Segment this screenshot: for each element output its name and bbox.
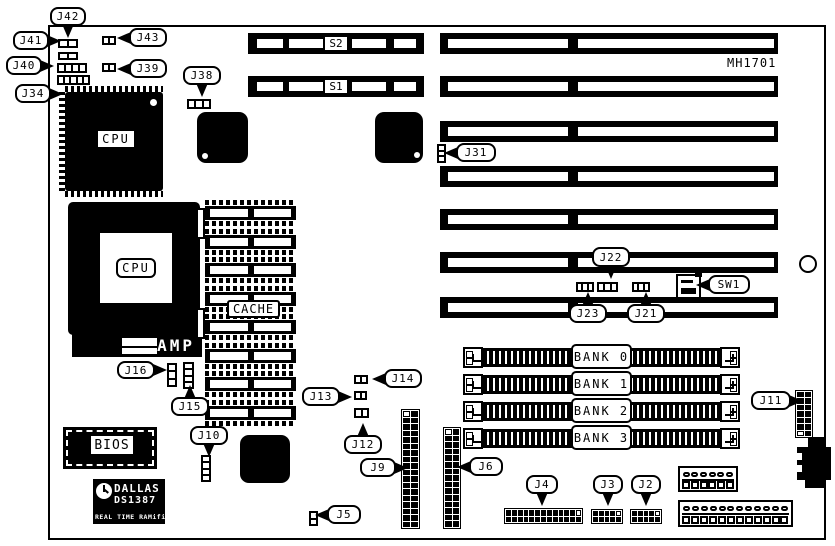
callout-arrow-j40 — [40, 60, 54, 72]
callout-j40: J40 — [6, 56, 42, 75]
connector-pin — [638, 517, 643, 522]
cpu-qfp-pin1-dot — [150, 99, 157, 106]
connector-pin — [655, 511, 660, 516]
simm-bank-1: BANK 1 — [463, 374, 740, 395]
jumper-pin — [73, 65, 78, 71]
jumper-block-j43 — [102, 36, 116, 45]
bios-label: BIOS — [91, 436, 133, 454]
jumper-block-j40 — [57, 63, 87, 73]
connector-pin — [411, 489, 418, 495]
power-pin — [772, 506, 779, 511]
connector-pin — [445, 515, 452, 521]
connector-pin — [553, 517, 558, 523]
power-connector-ps1 — [678, 466, 738, 492]
connector-pin — [632, 517, 637, 522]
chip-pins-top — [205, 400, 296, 405]
connector-pin — [506, 510, 511, 516]
cpu-qfp-label: CPU — [98, 131, 134, 147]
callout-arrow-j16 — [153, 364, 167, 376]
chip-pins-top — [205, 200, 296, 205]
mounting-hole — [799, 255, 817, 273]
jumper-pin — [356, 377, 360, 382]
connector-pin — [541, 510, 546, 516]
slot-key-segment — [448, 39, 568, 48]
jumper-pin — [362, 377, 366, 382]
jumper-pin — [169, 380, 175, 385]
power-pin — [701, 506, 708, 511]
connector-pin — [797, 418, 804, 423]
connector-pin — [411, 463, 418, 469]
callout-j16: J16 — [117, 361, 155, 379]
connector-pin — [445, 495, 452, 501]
connector-pin — [445, 449, 452, 455]
power-pin-row — [682, 503, 789, 515]
power-socket — [726, 481, 734, 489]
connector-pin — [453, 442, 460, 448]
expansion-slot-2 — [440, 76, 778, 97]
callout-j23: J23 — [569, 304, 607, 323]
slot-key-segment — [257, 82, 283, 91]
jumper-pin — [169, 365, 175, 370]
power-socket — [772, 516, 780, 524]
jumper-pin — [169, 372, 175, 377]
connector-pin — [445, 521, 452, 527]
connector-pin — [616, 517, 621, 522]
slot-key-segment — [578, 172, 774, 181]
jumper-block-j42 — [58, 39, 78, 48]
cache-chip-6 — [205, 371, 296, 397]
callout-arrow-j9 — [394, 462, 408, 474]
connector-pin — [411, 476, 418, 482]
connector-pin — [403, 515, 410, 521]
cache-chip-5 — [205, 343, 296, 369]
callout-j4: J4 — [526, 475, 558, 494]
connector-pin — [403, 444, 410, 450]
jumper-pin — [110, 65, 114, 70]
power-pin — [717, 472, 724, 477]
jumper-pin — [185, 364, 192, 368]
callout-arrow-j38 — [196, 83, 208, 97]
jumper-block-j13 — [354, 391, 367, 400]
slot-key-segment — [448, 303, 568, 312]
jumper-block-j34 — [57, 75, 90, 85]
cache-chip-1 — [205, 229, 296, 255]
connector-pin — [632, 511, 637, 516]
amp-slot-1 — [122, 338, 157, 346]
connector-pin — [797, 411, 804, 416]
power-socket — [763, 516, 771, 524]
callout-j39: J39 — [129, 59, 167, 78]
connector-j6 — [443, 427, 461, 529]
chip-body — [205, 377, 296, 391]
power-socket — [691, 516, 699, 524]
chip-pins-top — [205, 286, 296, 291]
callout-arrow-j10 — [203, 443, 215, 457]
connector-j3 — [591, 509, 623, 524]
jumper-pin — [203, 470, 209, 474]
connector-pin — [453, 488, 460, 494]
cache-chip-0 — [205, 200, 296, 226]
connector-pin — [403, 496, 410, 502]
jumper-block-j22 — [597, 282, 618, 292]
connector-pin — [453, 436, 460, 442]
connector-pin — [805, 398, 812, 403]
power-pin — [700, 472, 707, 477]
connector-j2 — [630, 509, 662, 524]
chip-pins-bottom — [205, 278, 296, 283]
amp-label: AMP — [157, 336, 195, 355]
connector-pin — [411, 444, 418, 450]
connector-pin — [445, 429, 452, 435]
slot-key-segment — [448, 215, 568, 224]
power-socket — [780, 516, 788, 524]
connector-pin — [512, 510, 517, 516]
power-socket — [700, 481, 708, 489]
connector-pin — [411, 450, 418, 456]
bank-label-0: BANK 0 — [571, 344, 632, 369]
jumper-pin — [203, 476, 209, 480]
power-pin — [683, 472, 690, 477]
power-pin — [754, 506, 761, 511]
bank-right-cap — [720, 428, 740, 449]
motherboard-diagram: MH1701 CPU CPU AMP CACHE BIOS DALLAS DS1… — [0, 0, 835, 546]
connector-pin — [593, 517, 598, 522]
connector-pin — [610, 511, 615, 516]
connector-pin — [797, 431, 804, 436]
connector-pin — [524, 510, 529, 516]
jumper-pin — [110, 38, 114, 43]
callout-j5: J5 — [327, 505, 361, 524]
slot-key-segment — [352, 82, 386, 91]
power-socket — [736, 516, 744, 524]
slot-key-segment — [578, 303, 774, 312]
connector-pin — [564, 517, 569, 523]
callout-arrow-j4 — [536, 492, 548, 506]
connector-pin — [453, 502, 460, 508]
connector-pin — [403, 450, 410, 456]
connector-pin — [535, 517, 540, 523]
jumper-pin — [204, 101, 209, 107]
jumper-pin — [589, 284, 592, 290]
power-socket — [717, 481, 725, 489]
power-pin — [763, 506, 770, 511]
connector-pin — [649, 517, 654, 522]
connector-pin — [805, 431, 812, 436]
jumper-pin — [60, 54, 67, 58]
connector-pin — [512, 517, 517, 523]
callout-j42: J42 — [50, 7, 86, 26]
power-socket — [682, 481, 690, 489]
power-socket — [754, 516, 762, 524]
jumper-pin — [203, 457, 209, 461]
jumper-pin — [356, 393, 360, 398]
slot-key-segment — [578, 127, 774, 136]
jumper-pin — [362, 393, 366, 398]
connector-pin — [564, 510, 569, 516]
sw1-switch-flag — [695, 271, 702, 277]
jumper-pin — [66, 65, 71, 71]
jumper-pin — [71, 77, 75, 83]
jumper-pin — [78, 77, 82, 83]
connector-pin — [411, 457, 418, 463]
bank-left-cap — [463, 347, 483, 368]
connector-pin — [644, 511, 649, 516]
dallas-logo-icon — [96, 483, 112, 499]
jumper-pin — [645, 284, 648, 290]
connector-pin — [411, 411, 418, 417]
chip-body — [205, 235, 296, 249]
power-socket-row — [682, 515, 789, 524]
jumper-pin — [356, 410, 361, 416]
connector-pin — [453, 495, 460, 501]
power-socket — [718, 516, 726, 524]
connector-pin — [445, 488, 452, 494]
connector-pin — [453, 521, 460, 527]
jumper-block-j14 — [354, 375, 368, 384]
cache-chip-2 — [205, 257, 296, 283]
callout-j6: J6 — [469, 457, 503, 476]
callout-j13: J13 — [302, 387, 340, 406]
connector-pin — [576, 517, 581, 523]
connector-pin — [805, 411, 812, 416]
connector-pin — [655, 517, 660, 522]
jumper-block-j41 — [58, 52, 78, 60]
rtc-desc: REAL TIME RAMified — [95, 513, 174, 521]
connector-pin — [610, 517, 615, 522]
connector-pin — [576, 510, 581, 516]
connector-pin — [411, 515, 418, 521]
connector-pin — [453, 515, 460, 521]
chip-body — [205, 263, 296, 277]
callout-arrow-j41 — [47, 35, 61, 47]
connector-pin — [403, 431, 410, 437]
connector-pin — [547, 510, 552, 516]
connector-pin — [453, 449, 460, 455]
connector-pin — [411, 509, 418, 515]
power-socket — [682, 516, 690, 524]
connector-pin — [599, 511, 604, 516]
callout-j21: J21 — [627, 304, 665, 323]
amp-slot-2 — [122, 348, 157, 354]
connector-pin — [411, 431, 418, 437]
connector-pin — [411, 502, 418, 508]
slot-label-s1: S1 — [323, 78, 349, 95]
connector-pin — [553, 510, 558, 516]
bank-left-cap — [463, 401, 483, 422]
connector-pin — [403, 424, 410, 430]
jumper-block-j39 — [102, 63, 116, 72]
power-pin — [726, 472, 733, 477]
chip-pins-bottom — [205, 335, 296, 340]
power-pin — [781, 506, 788, 511]
connector-pin — [529, 510, 534, 516]
chip-pins-bottom — [205, 392, 296, 397]
connector-pin — [445, 462, 452, 468]
connector-pin — [453, 429, 460, 435]
connector-pin — [638, 511, 643, 516]
power-pin — [710, 506, 717, 511]
bank-label-3: BANK 3 — [571, 425, 632, 450]
qfp-chip-1-dot — [202, 153, 208, 159]
callout-arrow-j2 — [640, 492, 652, 506]
power-pin-row — [682, 469, 734, 481]
jumper-pin — [104, 65, 108, 70]
connector-pin — [805, 405, 812, 410]
connector-pin — [547, 517, 552, 523]
callout-arrow-j13 — [338, 391, 352, 403]
chip-body — [205, 320, 296, 334]
slot-key-segment — [448, 172, 568, 181]
connector-pin — [541, 517, 546, 523]
socket-tab-top — [196, 208, 205, 239]
jumper-pin — [104, 38, 108, 43]
jumper-block-j12 — [354, 408, 369, 418]
bank-right-cap — [720, 347, 740, 368]
connector-pin — [403, 476, 410, 482]
power-socket — [700, 516, 708, 524]
connector-pin — [445, 469, 452, 475]
local-bus-slot-s1: S1 — [248, 76, 424, 97]
expansion-slot-5 — [440, 209, 778, 230]
slot-key-segment — [394, 39, 416, 48]
connector-pin — [445, 508, 452, 514]
board-model-text: MH1701 — [727, 56, 797, 70]
connector-pin — [453, 475, 460, 481]
callout-j10: J10 — [190, 426, 228, 445]
jumper-pin — [189, 101, 194, 107]
jumper-pin — [185, 370, 192, 374]
connector-pin — [411, 424, 418, 430]
connector-pin — [411, 418, 418, 424]
callout-arrow-j34 — [49, 88, 63, 100]
connector-pin — [445, 475, 452, 481]
jumper-pin — [612, 284, 616, 290]
connector-pin — [403, 418, 410, 424]
jumper-pin — [65, 77, 69, 83]
sw1-switch-bar-thin — [681, 280, 693, 283]
power-socket — [691, 481, 699, 489]
slot-key-segment — [448, 82, 568, 91]
expansion-slot-4 — [440, 166, 778, 187]
connector-pin — [524, 517, 529, 523]
power-socket-row — [682, 481, 734, 489]
rtc-part: DS1387 — [114, 495, 156, 506]
jumper-pin — [80, 65, 85, 71]
jumper-pin — [203, 463, 209, 467]
connector-pin — [506, 517, 511, 523]
power-pin — [692, 506, 699, 511]
cache-label: CACHE — [227, 300, 280, 318]
connector-pin — [805, 424, 812, 429]
jumper-pin — [605, 284, 609, 290]
bank-label-1: BANK 1 — [571, 371, 632, 396]
callout-j31: J31 — [456, 143, 496, 162]
connector-pin — [518, 510, 523, 516]
chip-pins-bottom — [205, 221, 296, 226]
slot-key-segment — [257, 39, 283, 48]
chip-body — [205, 349, 296, 363]
connector-pin — [570, 517, 575, 523]
chip-body — [205, 406, 296, 420]
callout-j15: J15 — [171, 397, 209, 416]
expansion-slot-1 — [440, 33, 778, 54]
jumper-pin — [363, 410, 368, 416]
slot-key-segment — [289, 82, 323, 91]
slot-key-segment — [448, 127, 568, 136]
jumper-pin — [599, 284, 603, 290]
simm-bank-3: BANK 3 — [463, 428, 740, 449]
slot-key-segment — [352, 39, 386, 48]
connector-pin — [445, 455, 452, 461]
connector-pin — [403, 522, 410, 528]
callout-j41: J41 — [13, 31, 49, 50]
simm-bank-0: BANK 0 — [463, 347, 740, 368]
jumper-pin — [185, 377, 192, 381]
jumper-block-j21 — [632, 282, 650, 292]
connector-pin — [403, 502, 410, 508]
connector-pin — [411, 496, 418, 502]
bank-label-2: BANK 2 — [571, 398, 632, 423]
slot-key-segment — [289, 39, 323, 48]
connector-pin — [453, 482, 460, 488]
jumper-pin — [84, 77, 88, 83]
connector-pin — [411, 522, 418, 528]
simm-bank-2: BANK 2 — [463, 401, 740, 422]
jumper-pin — [59, 77, 63, 83]
connector-pin — [445, 502, 452, 508]
connector-pin — [593, 511, 598, 516]
chip-pins-bottom — [205, 364, 296, 369]
chip-pins-top — [205, 257, 296, 262]
jumper-pin — [578, 284, 581, 290]
connector-pin — [403, 509, 410, 515]
connector-pin — [529, 517, 534, 523]
connector-pin — [445, 442, 452, 448]
connector-pin — [805, 418, 812, 423]
jumper-pin — [69, 41, 76, 46]
connector-pin — [605, 511, 610, 516]
expansion-slot-7 — [440, 297, 778, 318]
callout-j14: J14 — [384, 369, 422, 388]
jumper-pin — [196, 101, 201, 107]
bank-left-cap — [463, 428, 483, 449]
callout-j34: J34 — [15, 84, 51, 103]
cpu-socket-label: CPU — [116, 258, 156, 278]
callout-j3: J3 — [593, 475, 623, 494]
connector-pin — [797, 424, 804, 429]
jumper-block-j10 — [201, 455, 211, 482]
power-socket — [745, 516, 753, 524]
connector-j4 — [504, 508, 583, 524]
connector-pin — [599, 517, 604, 522]
jumper-block-j16 — [167, 363, 177, 387]
local-bus-slot-s2: S2 — [248, 33, 424, 54]
chip-pins-top — [205, 343, 296, 348]
connector-pin — [403, 437, 410, 443]
connector-pin — [535, 510, 540, 516]
socket-tab-bottom — [196, 308, 205, 339]
slot-key-segment — [578, 39, 774, 48]
power-pin — [745, 506, 752, 511]
connector-pin — [403, 483, 410, 489]
callout-j9: J9 — [360, 458, 396, 477]
slot-key-segment — [578, 82, 774, 91]
callout-arrow-j3 — [602, 492, 614, 506]
connector-pin — [411, 483, 418, 489]
power-pin — [736, 506, 743, 511]
callout-sw1: SW1 — [708, 275, 750, 294]
chip-pins-bottom — [205, 250, 296, 255]
